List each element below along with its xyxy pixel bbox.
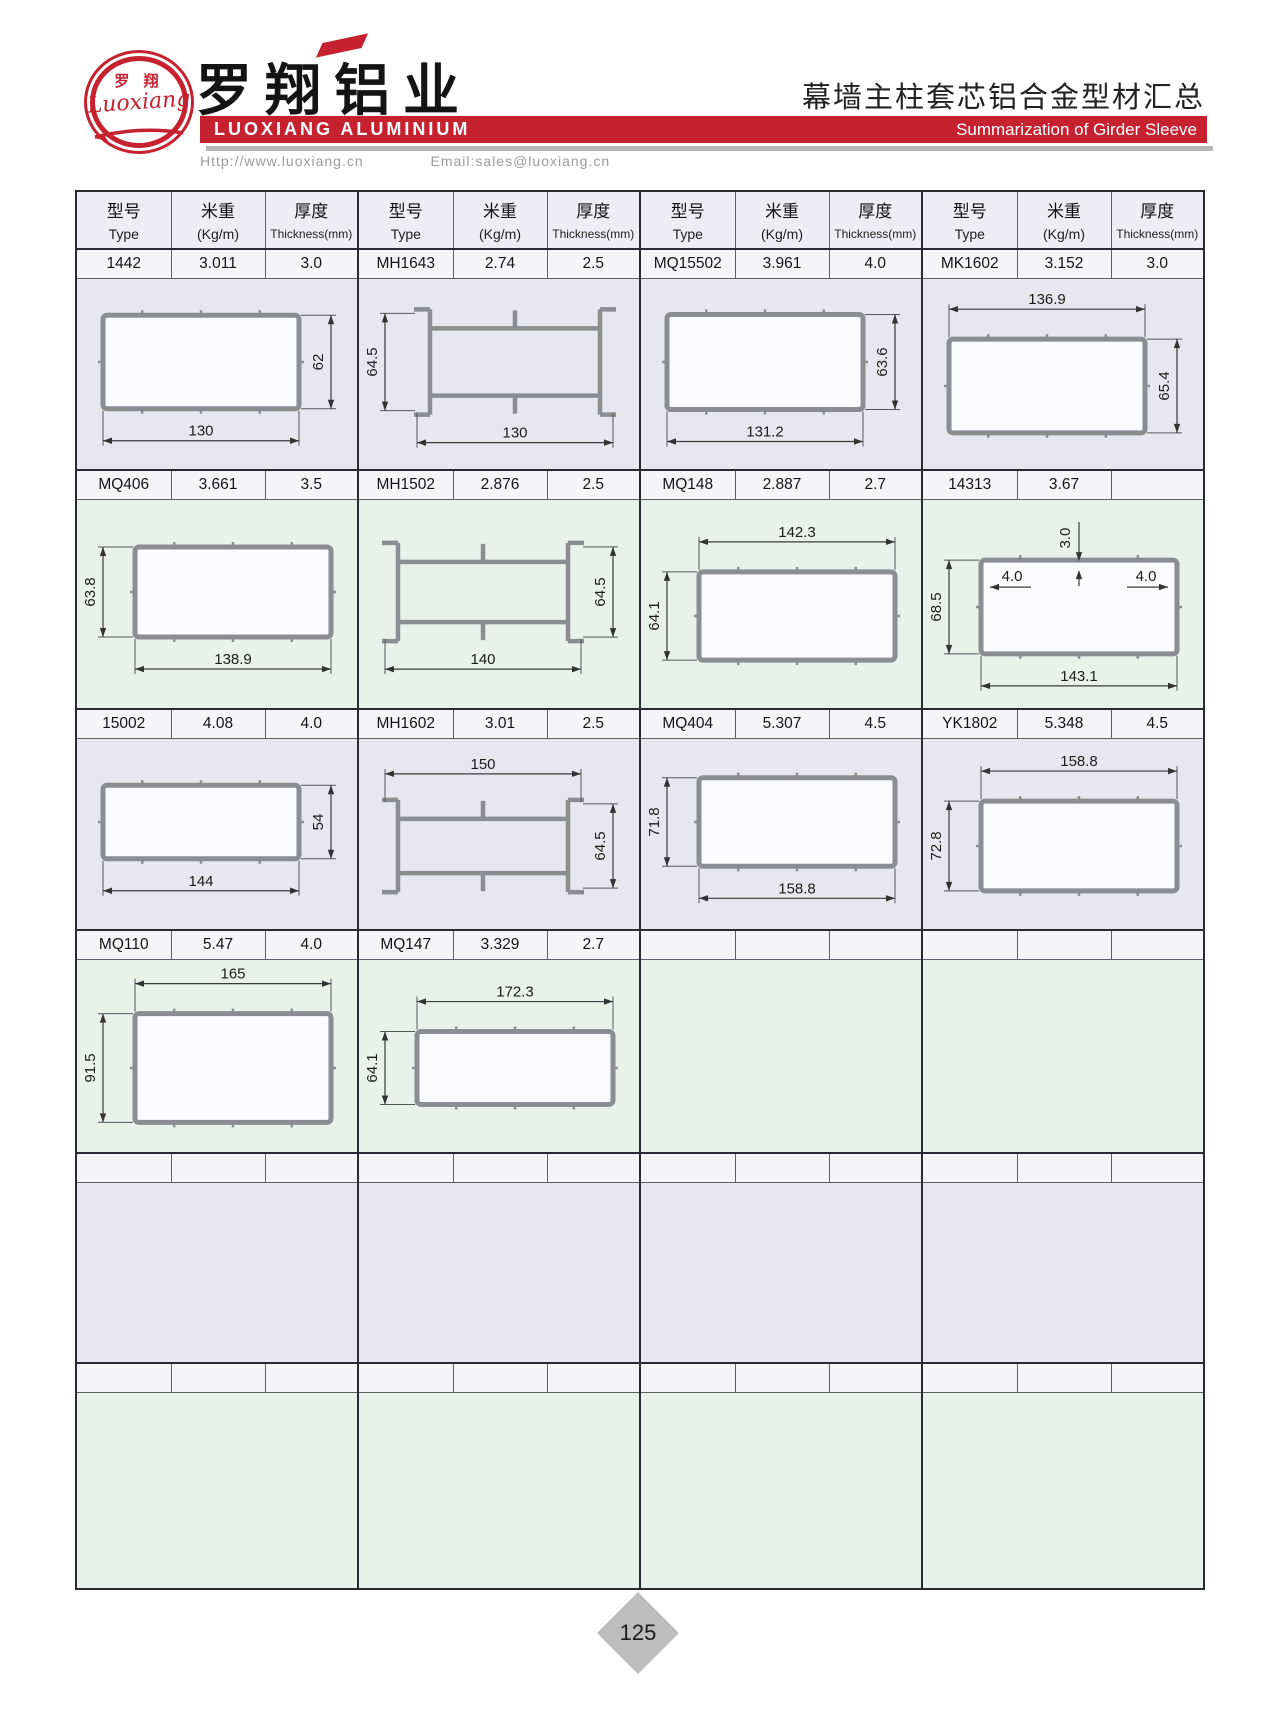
svg-text:3.0: 3.0 bbox=[1057, 528, 1074, 549]
col-header-thickness: 厚度Thickness(mm) bbox=[547, 191, 640, 249]
cell-type: MQ147 bbox=[358, 930, 453, 960]
cell-type: MQ110 bbox=[76, 930, 171, 960]
col-header-thickness: 厚度Thickness(mm) bbox=[1111, 191, 1204, 249]
cell-thickness: 3.5 bbox=[265, 470, 358, 500]
svg-text:158.8: 158.8 bbox=[778, 880, 816, 897]
svg-text:158.8: 158.8 bbox=[1060, 753, 1098, 770]
cell-drawing: 158.872.8 bbox=[922, 739, 1204, 931]
cell-thickness: 4.5 bbox=[1111, 709, 1204, 739]
data-row-empty bbox=[76, 1363, 1204, 1393]
svg-text:91.5: 91.5 bbox=[82, 1053, 99, 1082]
cell-weight bbox=[453, 1363, 547, 1393]
cell-weight: 4.08 bbox=[171, 709, 265, 739]
cell-type bbox=[76, 1153, 171, 1183]
cell-thickness: 2.5 bbox=[547, 709, 640, 739]
contact-line: Http://www.luoxiang.cn Email:sales@luoxi… bbox=[200, 153, 672, 169]
profile-drawing: 158.871.8 bbox=[641, 739, 921, 929]
col-header-weight: 米重(Kg/m) bbox=[453, 191, 547, 249]
cell-type: MH1502 bbox=[358, 470, 453, 500]
page-number-badge: 125 bbox=[597, 1592, 679, 1674]
profile-drawing: 14454 bbox=[77, 739, 357, 929]
cell-drawing bbox=[640, 1183, 922, 1364]
cell-thickness bbox=[829, 1153, 922, 1183]
col-header-type: 型号Type bbox=[922, 191, 1017, 249]
cell-weight: 3.67 bbox=[1017, 470, 1111, 500]
profile-drawing: 13062 bbox=[77, 279, 357, 469]
cell-thickness: 4.0 bbox=[265, 930, 358, 960]
col-header-weight: 米重(Kg/m) bbox=[735, 191, 829, 249]
cell-weight bbox=[735, 1153, 829, 1183]
svg-text:54: 54 bbox=[310, 814, 327, 831]
cell-weight: 2.887 bbox=[735, 470, 829, 500]
profile-drawing: 136.965.4 bbox=[923, 279, 1203, 469]
cell-drawing bbox=[76, 1183, 358, 1364]
profile-drawing: 138.963.8 bbox=[77, 500, 357, 708]
cell-thickness bbox=[1111, 470, 1204, 500]
cell-drawing: 14064.5 bbox=[358, 500, 640, 710]
cell-drawing: 13062 bbox=[76, 279, 358, 471]
svg-text:138.9: 138.9 bbox=[214, 651, 252, 668]
svg-text:144: 144 bbox=[188, 873, 213, 890]
cell-type bbox=[922, 1363, 1017, 1393]
cell-weight: 2.74 bbox=[453, 249, 547, 279]
cell-weight: 3.01 bbox=[453, 709, 547, 739]
cell-thickness: 2.5 bbox=[547, 249, 640, 279]
svg-text:71.8: 71.8 bbox=[646, 807, 663, 836]
cell-type: 1442 bbox=[76, 249, 171, 279]
cell-thickness bbox=[265, 1363, 358, 1393]
svg-text:63.8: 63.8 bbox=[82, 577, 99, 606]
data-row: 1442 3.011 3.0 MH1643 2.74 2.5 MQ15502 3… bbox=[76, 249, 1204, 279]
svg-text:72.8: 72.8 bbox=[928, 831, 945, 860]
cell-thickness bbox=[547, 1153, 640, 1183]
cell-type: MQ406 bbox=[76, 470, 171, 500]
cell-weight: 5.348 bbox=[1017, 709, 1111, 739]
cell-weight: 3.661 bbox=[171, 470, 265, 500]
cell-drawing: 131.263.6 bbox=[640, 279, 922, 471]
profile-drawing: 142.364.1 bbox=[641, 500, 921, 708]
red-banner: LUOXIANG ALUMINIUM Summarization of Gird… bbox=[200, 116, 1207, 143]
cell-drawing: 136.965.4 bbox=[922, 279, 1204, 471]
cell-thickness: 2.7 bbox=[829, 470, 922, 500]
svg-text:136.9: 136.9 bbox=[1028, 291, 1066, 308]
col-header-type: 型号Type bbox=[76, 191, 171, 249]
cell-type bbox=[922, 1153, 1017, 1183]
cell-thickness: 4.0 bbox=[829, 249, 922, 279]
profile-catalog-table: 型号Type 米重(Kg/m) 厚度Thickness(mm) 型号Type 米… bbox=[75, 190, 1205, 1590]
cell-weight: 2.876 bbox=[453, 470, 547, 500]
cell-thickness: 2.7 bbox=[547, 930, 640, 960]
cell-drawing: 13064.5 bbox=[358, 279, 640, 471]
cell-thickness bbox=[1111, 1153, 1204, 1183]
cell-weight bbox=[453, 1153, 547, 1183]
cell-weight: 3.011 bbox=[171, 249, 265, 279]
cell-drawing bbox=[922, 1183, 1204, 1364]
col-header-thickness: 厚度Thickness(mm) bbox=[829, 191, 922, 249]
profile-drawing: 16591.5 bbox=[77, 960, 357, 1152]
svg-text:130: 130 bbox=[188, 423, 213, 440]
cell-weight bbox=[171, 1363, 265, 1393]
drawing-row: 138.963.8 14064.5 142.364.1 143.168.53.0… bbox=[76, 500, 1204, 710]
profile-drawing: 15064.5 bbox=[359, 739, 639, 929]
cell-type bbox=[358, 1363, 453, 1393]
profile-drawing: 172.364.1 bbox=[359, 960, 639, 1152]
svg-text:140: 140 bbox=[470, 651, 495, 668]
logo-swoosh-icon bbox=[92, 124, 186, 142]
cell-drawing: 143.168.53.04.04.0 bbox=[922, 500, 1204, 710]
cell-thickness bbox=[1111, 930, 1204, 960]
page-title-en: Summarization of Girder Sleeve bbox=[956, 120, 1197, 140]
cell-type: MQ404 bbox=[640, 709, 735, 739]
cell-drawing bbox=[640, 1393, 922, 1590]
catalog-page: 罗 翔 Luoxiang 罗翔铝业 幕墙主柱套芯铝合金型材汇总 LUOXIANG… bbox=[0, 0, 1277, 1718]
cell-drawing: 15064.5 bbox=[358, 739, 640, 931]
email-address: Email:sales@luoxiang.cn bbox=[431, 153, 611, 169]
cell-drawing bbox=[358, 1393, 640, 1590]
cell-type bbox=[76, 1363, 171, 1393]
svg-text:143.1: 143.1 bbox=[1060, 668, 1098, 685]
profile-drawing: 131.263.6 bbox=[641, 279, 921, 469]
svg-text:65.4: 65.4 bbox=[1156, 371, 1173, 400]
svg-text:68.5: 68.5 bbox=[928, 592, 945, 621]
cell-thickness bbox=[829, 1363, 922, 1393]
cell-drawing bbox=[922, 960, 1204, 1154]
cell-type: MH1602 bbox=[358, 709, 453, 739]
svg-text:131.2: 131.2 bbox=[746, 424, 784, 441]
cell-thickness: 3.0 bbox=[265, 249, 358, 279]
cell-type: MK1602 bbox=[922, 249, 1017, 279]
cell-type: MH1643 bbox=[358, 249, 453, 279]
cell-drawing: 172.364.1 bbox=[358, 960, 640, 1154]
table-header-row: 型号Type 米重(Kg/m) 厚度Thickness(mm) 型号Type 米… bbox=[76, 191, 1204, 249]
cell-weight: 3.329 bbox=[453, 930, 547, 960]
col-header-thickness: 厚度Thickness(mm) bbox=[265, 191, 358, 249]
cell-thickness bbox=[829, 930, 922, 960]
svg-text:172.3: 172.3 bbox=[496, 984, 534, 1001]
cell-weight bbox=[735, 930, 829, 960]
cell-weight: 3.152 bbox=[1017, 249, 1111, 279]
col-header-type: 型号Type bbox=[640, 191, 735, 249]
page-number: 125 bbox=[609, 1604, 667, 1662]
cell-type: 14313 bbox=[922, 470, 1017, 500]
cell-type bbox=[640, 1363, 735, 1393]
cell-drawing bbox=[922, 1393, 1204, 1590]
cell-thickness: 4.0 bbox=[265, 709, 358, 739]
svg-text:130: 130 bbox=[502, 425, 527, 442]
cell-thickness bbox=[547, 1363, 640, 1393]
company-name-cn: 罗翔铝业 bbox=[196, 46, 472, 127]
col-header-type: 型号Type bbox=[358, 191, 453, 249]
svg-text:165: 165 bbox=[220, 966, 245, 983]
data-row: MQ406 3.661 3.5 MH1502 2.876 2.5 MQ148 2… bbox=[76, 470, 1204, 500]
cell-weight: 5.307 bbox=[735, 709, 829, 739]
website-url: Http://www.luoxiang.cn bbox=[200, 153, 364, 169]
cell-drawing: 158.871.8 bbox=[640, 739, 922, 931]
cell-type bbox=[922, 930, 1017, 960]
cell-weight bbox=[171, 1153, 265, 1183]
cell-weight bbox=[1017, 1153, 1111, 1183]
profile-drawing: 14064.5 bbox=[359, 500, 639, 708]
data-row: MQ110 5.47 4.0 MQ147 3.329 2.7 bbox=[76, 930, 1204, 960]
cell-drawing: 142.364.1 bbox=[640, 500, 922, 710]
svg-text:142.3: 142.3 bbox=[778, 524, 816, 541]
cell-thickness bbox=[265, 1153, 358, 1183]
cell-drawing bbox=[640, 960, 922, 1154]
svg-text:64.5: 64.5 bbox=[592, 577, 609, 606]
cell-thickness: 3.0 bbox=[1111, 249, 1204, 279]
profile-drawing: 143.168.53.04.04.0 bbox=[923, 500, 1203, 708]
luoxiang-logo: 罗 翔 Luoxiang bbox=[84, 50, 194, 154]
cell-weight: 3.961 bbox=[735, 249, 829, 279]
svg-text:64.5: 64.5 bbox=[592, 831, 609, 860]
cell-drawing: 14454 bbox=[76, 739, 358, 931]
cell-type: 15002 bbox=[76, 709, 171, 739]
col-header-weight: 米重(Kg/m) bbox=[171, 191, 265, 249]
cell-thickness: 2.5 bbox=[547, 470, 640, 500]
svg-text:62: 62 bbox=[310, 354, 327, 371]
cell-thickness bbox=[1111, 1363, 1204, 1393]
data-row-empty bbox=[76, 1153, 1204, 1183]
svg-text:4.0: 4.0 bbox=[1002, 568, 1023, 585]
drawing-row-empty bbox=[76, 1183, 1204, 1364]
profile-drawing bbox=[923, 960, 1203, 1152]
svg-text:63.6: 63.6 bbox=[874, 347, 891, 376]
drawing-row: 16591.5 172.364.1 bbox=[76, 960, 1204, 1154]
svg-text:64.1: 64.1 bbox=[646, 601, 663, 630]
col-header-weight: 米重(Kg/m) bbox=[1017, 191, 1111, 249]
profile-drawing: 158.872.8 bbox=[923, 739, 1203, 929]
cell-type: MQ148 bbox=[640, 470, 735, 500]
profile-drawing: 13064.5 bbox=[359, 279, 639, 469]
cell-drawing bbox=[358, 1183, 640, 1364]
cell-weight bbox=[1017, 1363, 1111, 1393]
cell-type bbox=[640, 930, 735, 960]
cell-type bbox=[640, 1153, 735, 1183]
cell-type: MQ15502 bbox=[640, 249, 735, 279]
drawing-row: 13062 13064.5 131.263.6 136.965.4 bbox=[76, 279, 1204, 471]
profile-drawing bbox=[641, 960, 921, 1152]
company-name-en: LUOXIANG ALUMINIUM bbox=[214, 119, 470, 140]
svg-text:4.0: 4.0 bbox=[1136, 568, 1157, 585]
data-row: 15002 4.08 4.0 MH1602 3.01 2.5 MQ404 5.3… bbox=[76, 709, 1204, 739]
svg-text:150: 150 bbox=[470, 756, 495, 773]
cell-drawing bbox=[76, 1393, 358, 1590]
cell-drawing: 16591.5 bbox=[76, 960, 358, 1154]
cell-type: YK1802 bbox=[922, 709, 1017, 739]
cell-type bbox=[358, 1153, 453, 1183]
cell-weight bbox=[735, 1363, 829, 1393]
cell-thickness: 4.5 bbox=[829, 709, 922, 739]
page-title-cn: 幕墙主柱套芯铝合金型材汇总 bbox=[802, 74, 1205, 116]
svg-text:64.1: 64.1 bbox=[364, 1053, 381, 1082]
cell-drawing: 138.963.8 bbox=[76, 500, 358, 710]
drawing-row: 14454 15064.5 158.871.8 158.872.8 bbox=[76, 739, 1204, 931]
cell-weight bbox=[1017, 930, 1111, 960]
gray-divider bbox=[206, 146, 1213, 151]
svg-text:64.5: 64.5 bbox=[364, 347, 381, 376]
drawing-row-empty bbox=[76, 1393, 1204, 1590]
cell-weight: 5.47 bbox=[171, 930, 265, 960]
